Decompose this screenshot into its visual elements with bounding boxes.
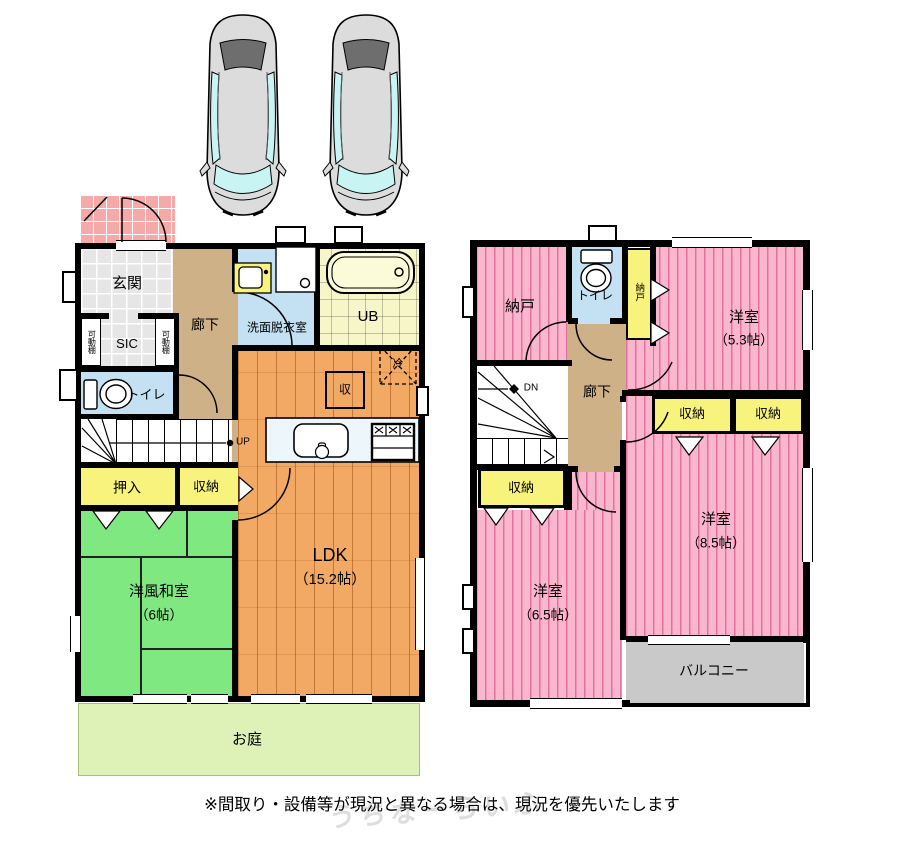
label-fridge: 冷 — [393, 358, 404, 370]
label-japanese-room: 洋風和室 — [129, 584, 189, 601]
room-hallway-2f-lower — [568, 396, 622, 472]
label-toilet-1f: トイレ — [126, 388, 165, 402]
room-western-53-doorway — [626, 340, 654, 396]
wall-segment — [232, 520, 238, 702]
label-garden: お庭 — [232, 732, 262, 749]
window-south — [191, 694, 228, 704]
window-western-65-south — [530, 698, 622, 709]
label-western-85-size: （8.5帖） — [686, 537, 745, 552]
label-hallway-2f: 廊下 — [583, 384, 611, 399]
wall-segment — [650, 246, 656, 346]
window-western-53-north — [672, 237, 752, 248]
label-balcony: バルコニー — [679, 663, 749, 678]
equipment-box — [275, 226, 306, 244]
window-south — [133, 694, 187, 704]
window-nando — [462, 286, 475, 318]
label-sic: SIC — [116, 337, 138, 351]
equipment-box — [588, 225, 617, 242]
window-western-53-east — [802, 290, 813, 350]
window-japanese-room — [70, 616, 81, 652]
wall-segment — [81, 366, 179, 372]
label-closet-1f: 収納 — [193, 480, 219, 494]
wall-segment — [566, 246, 572, 322]
label-western-53: 洋室 — [729, 310, 759, 327]
label-western-53-size: （5.3帖） — [714, 334, 773, 349]
window-south — [251, 694, 300, 704]
label-oshiire: 押入 — [113, 480, 141, 495]
wall-segment — [568, 318, 578, 324]
outer-wall-2f — [470, 240, 810, 247]
label-closet-2f-c: 収納 — [508, 481, 534, 495]
wall-segment — [232, 248, 238, 292]
window-western-65 — [462, 628, 475, 654]
balcony-door — [648, 635, 730, 645]
label-movable-shelf: 可動棚 — [161, 330, 170, 354]
car-top-view-icon — [322, 12, 410, 218]
label-closet-2f-a: 収納 — [679, 407, 705, 421]
car-top-view-icon — [199, 12, 287, 218]
label-ldk-size: （15.2帖） — [294, 573, 366, 589]
label-entrance: 玄関 — [112, 276, 142, 293]
wall-segment — [620, 396, 626, 402]
room-toilet-2f — [568, 246, 626, 324]
label-storage-room: 納戸 — [505, 299, 535, 316]
wall-segment — [476, 360, 572, 366]
window-south — [306, 694, 372, 704]
wall-segment — [81, 414, 179, 419]
wall-segment — [175, 468, 180, 510]
room-western-65 — [476, 510, 622, 702]
window-genkan — [62, 271, 77, 303]
wall-segment — [81, 505, 238, 511]
label-closet-nando: 納戸 — [633, 283, 643, 302]
entrance-door-opening — [116, 240, 166, 251]
room-western-53 — [650, 246, 804, 396]
wall-segment — [626, 636, 650, 642]
wall-segment — [81, 462, 238, 468]
equipment-box — [334, 226, 363, 244]
label-hallway-1f: 廊下 — [191, 317, 219, 332]
wall-segment — [622, 246, 628, 324]
label-japanese-room-size: （6帖） — [135, 609, 183, 624]
label-unit-bath: UB — [358, 309, 379, 326]
wall-segment — [232, 346, 238, 420]
floorplan-canvas: 玄関 SIC 可動棚 可動棚 廊下 洗面脱衣室 UB トイレ UP 押入 収納 … — [0, 0, 899, 849]
wall-segment — [728, 636, 804, 642]
label-up: UP — [236, 437, 250, 448]
label-toilet-2f: トイレ — [577, 289, 613, 302]
window-toilet-1f — [59, 369, 78, 401]
wall-segment — [614, 466, 622, 472]
label-western-65: 洋室 — [533, 584, 563, 601]
window-ldk-east — [415, 558, 425, 650]
door-kitchen-side — [416, 386, 429, 416]
label-western-85: 洋室 — [701, 512, 731, 529]
wall-segment — [232, 345, 425, 351]
wall-segment — [314, 248, 320, 345]
label-western-65-size: （6.5帖） — [518, 609, 577, 624]
label-movable-shelf: 可動棚 — [87, 330, 96, 354]
label-ldk-closet: 収 — [339, 383, 351, 396]
label-ldk: LDK — [312, 546, 347, 566]
wall-segment — [610, 318, 628, 324]
balcony-wall — [626, 703, 810, 707]
label-dn: DN — [524, 383, 538, 394]
label-closet-2f-b: 収納 — [755, 407, 781, 421]
disclaimer-text: ※間取り・設備等が現況と異なる場合は、現況を優先いたします — [204, 791, 680, 815]
entrance-porch — [80, 195, 175, 243]
room-western-65-notch — [568, 472, 622, 512]
window-western-85-east — [802, 468, 813, 562]
balcony-wall — [806, 640, 810, 707]
window-western-65 — [462, 584, 475, 610]
label-washroom: 洗面脱衣室 — [247, 321, 307, 334]
